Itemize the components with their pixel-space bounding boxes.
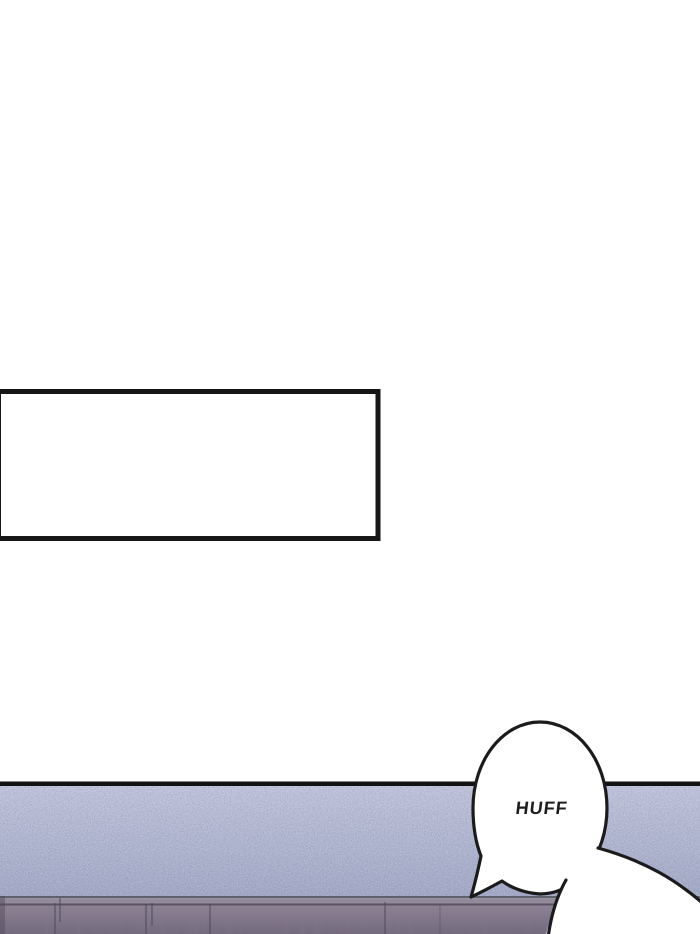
comic-page: HUFF — [0, 0, 700, 934]
comic-panel-art: HUFF — [0, 0, 700, 934]
cabinet-left-edge-shadow — [0, 896, 5, 934]
caption-box — [0, 392, 378, 539]
huff-sfx-text: HUFF — [515, 798, 569, 818]
